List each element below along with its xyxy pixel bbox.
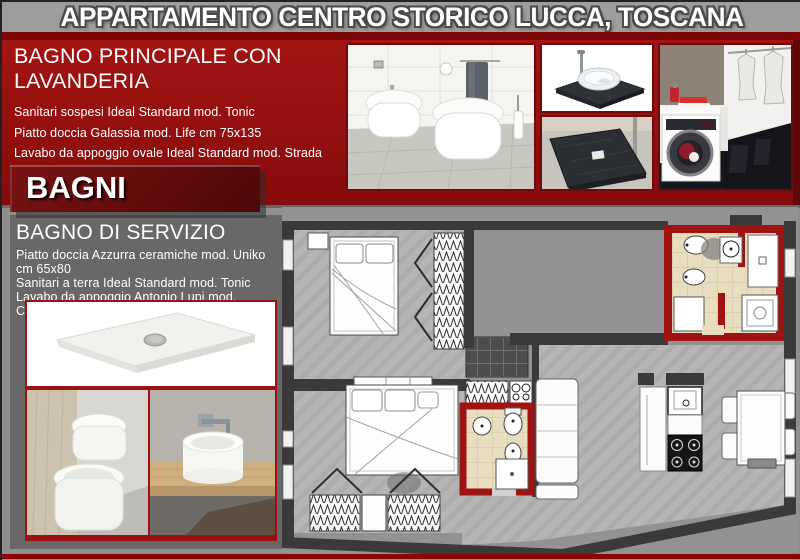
bagni-badge-label: BAGNI bbox=[10, 165, 260, 211]
floor-plan bbox=[282, 207, 798, 555]
bottom-red-rule bbox=[2, 554, 800, 559]
service-bath-photos bbox=[25, 388, 277, 541]
service-bath-heading: BAGNO DI SERVIZIO bbox=[16, 221, 282, 245]
countertop-basin-photo bbox=[540, 43, 654, 113]
page-title: APPARTAMENTO CENTRO STORICO LUCCA, TOSCA… bbox=[14, 2, 790, 33]
title-bar: APPARTAMENTO CENTRO STORICO LUCCA, TOSCA… bbox=[2, 2, 800, 32]
main-bath-item: Sanitari sospesi Ideal Standard mod. Ton… bbox=[14, 102, 344, 123]
dark-shower-tray-photo bbox=[540, 115, 654, 191]
service-bath-column: BAGNO DI SERVIZIO Piatto doccia Azzurra … bbox=[10, 215, 282, 549]
white-shower-tray-photo bbox=[25, 300, 277, 388]
bagni-badge: BAGNI bbox=[10, 165, 260, 212]
main-bath-text: BAGNO PRINCIPALE CON LAVANDERIA Sanitari… bbox=[14, 42, 344, 184]
title-underline-bar bbox=[2, 32, 800, 40]
service-bath-item: Piatto doccia Azzurra ceramiche mod. Uni… bbox=[16, 251, 282, 272]
laundry-washer-photo bbox=[658, 43, 793, 191]
band-right-edge bbox=[793, 40, 800, 205]
round-basin-photo bbox=[150, 390, 275, 535]
main-bath-heading: BAGNO PRINCIPALE CON LAVANDERIA bbox=[14, 44, 344, 94]
wall-hung-toilets-photo bbox=[346, 43, 536, 191]
floor-toilets-photo bbox=[27, 390, 148, 535]
main-bath-item: Lavabo da appoggio ovale Ideal Standard … bbox=[14, 143, 344, 164]
brochure-slide: APPARTAMENTO CENTRO STORICO LUCCA, TOSCA… bbox=[0, 0, 800, 560]
main-bath-item: Piatto doccia Galassia mod. Life cm 75x1… bbox=[14, 123, 344, 144]
